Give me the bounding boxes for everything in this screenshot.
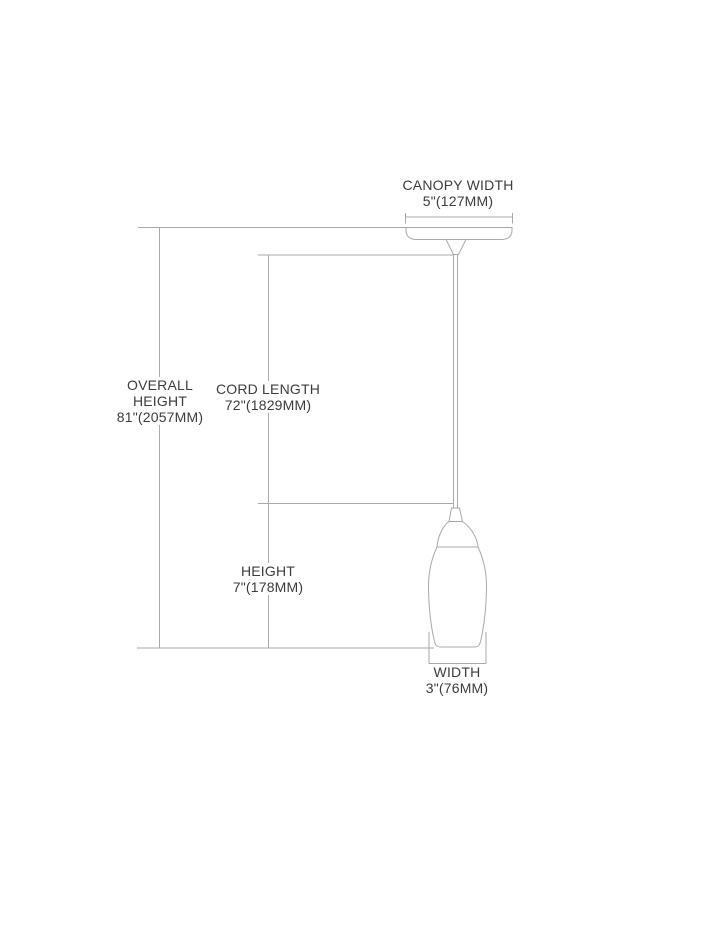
technical-drawing — [0, 0, 720, 932]
shade-width-label-title: WIDTH — [402, 664, 512, 680]
shade-width-label: WIDTH 3"(76MM) — [402, 664, 512, 696]
overall-height-label: OVERALL HEIGHT 81"(2057MM) — [105, 377, 215, 425]
pendant-dimension-diagram: CANOPY WIDTH 5"(127MM) OVERALL HEIGHT 81… — [0, 0, 720, 932]
shade-dome-right — [463, 522, 479, 548]
overall-height-label-value: 81"(2057MM) — [105, 409, 215, 425]
canopy-width-label-value: 5"(127MM) — [383, 193, 533, 209]
canopy-width-label-title: CANOPY WIDTH — [383, 177, 533, 193]
canopy-stem-cone — [446, 240, 466, 255]
shade-width-label-value: 3"(76MM) — [402, 680, 512, 696]
overall-height-label-title-2: HEIGHT — [105, 393, 215, 409]
canopy-width-label: CANOPY WIDTH 5"(127MM) — [383, 177, 533, 209]
shade-height-label: HEIGHT 7"(178MM) — [213, 563, 323, 595]
cord-length-label-value: 72"(1829MM) — [203, 397, 333, 413]
overall-height-label-title-1: OVERALL — [105, 377, 215, 393]
shade-socket — [449, 508, 463, 522]
shade-height-label-value: 7"(178MM) — [213, 579, 323, 595]
cord-length-label-title: CORD LENGTH — [203, 381, 333, 397]
canopy-outline — [406, 228, 512, 240]
shade-dome-left — [437, 522, 449, 548]
shade-height-label-title: HEIGHT — [213, 563, 323, 579]
shade-body-outline — [429, 547, 487, 647]
cord-length-label: CORD LENGTH 72"(1829MM) — [203, 381, 333, 413]
